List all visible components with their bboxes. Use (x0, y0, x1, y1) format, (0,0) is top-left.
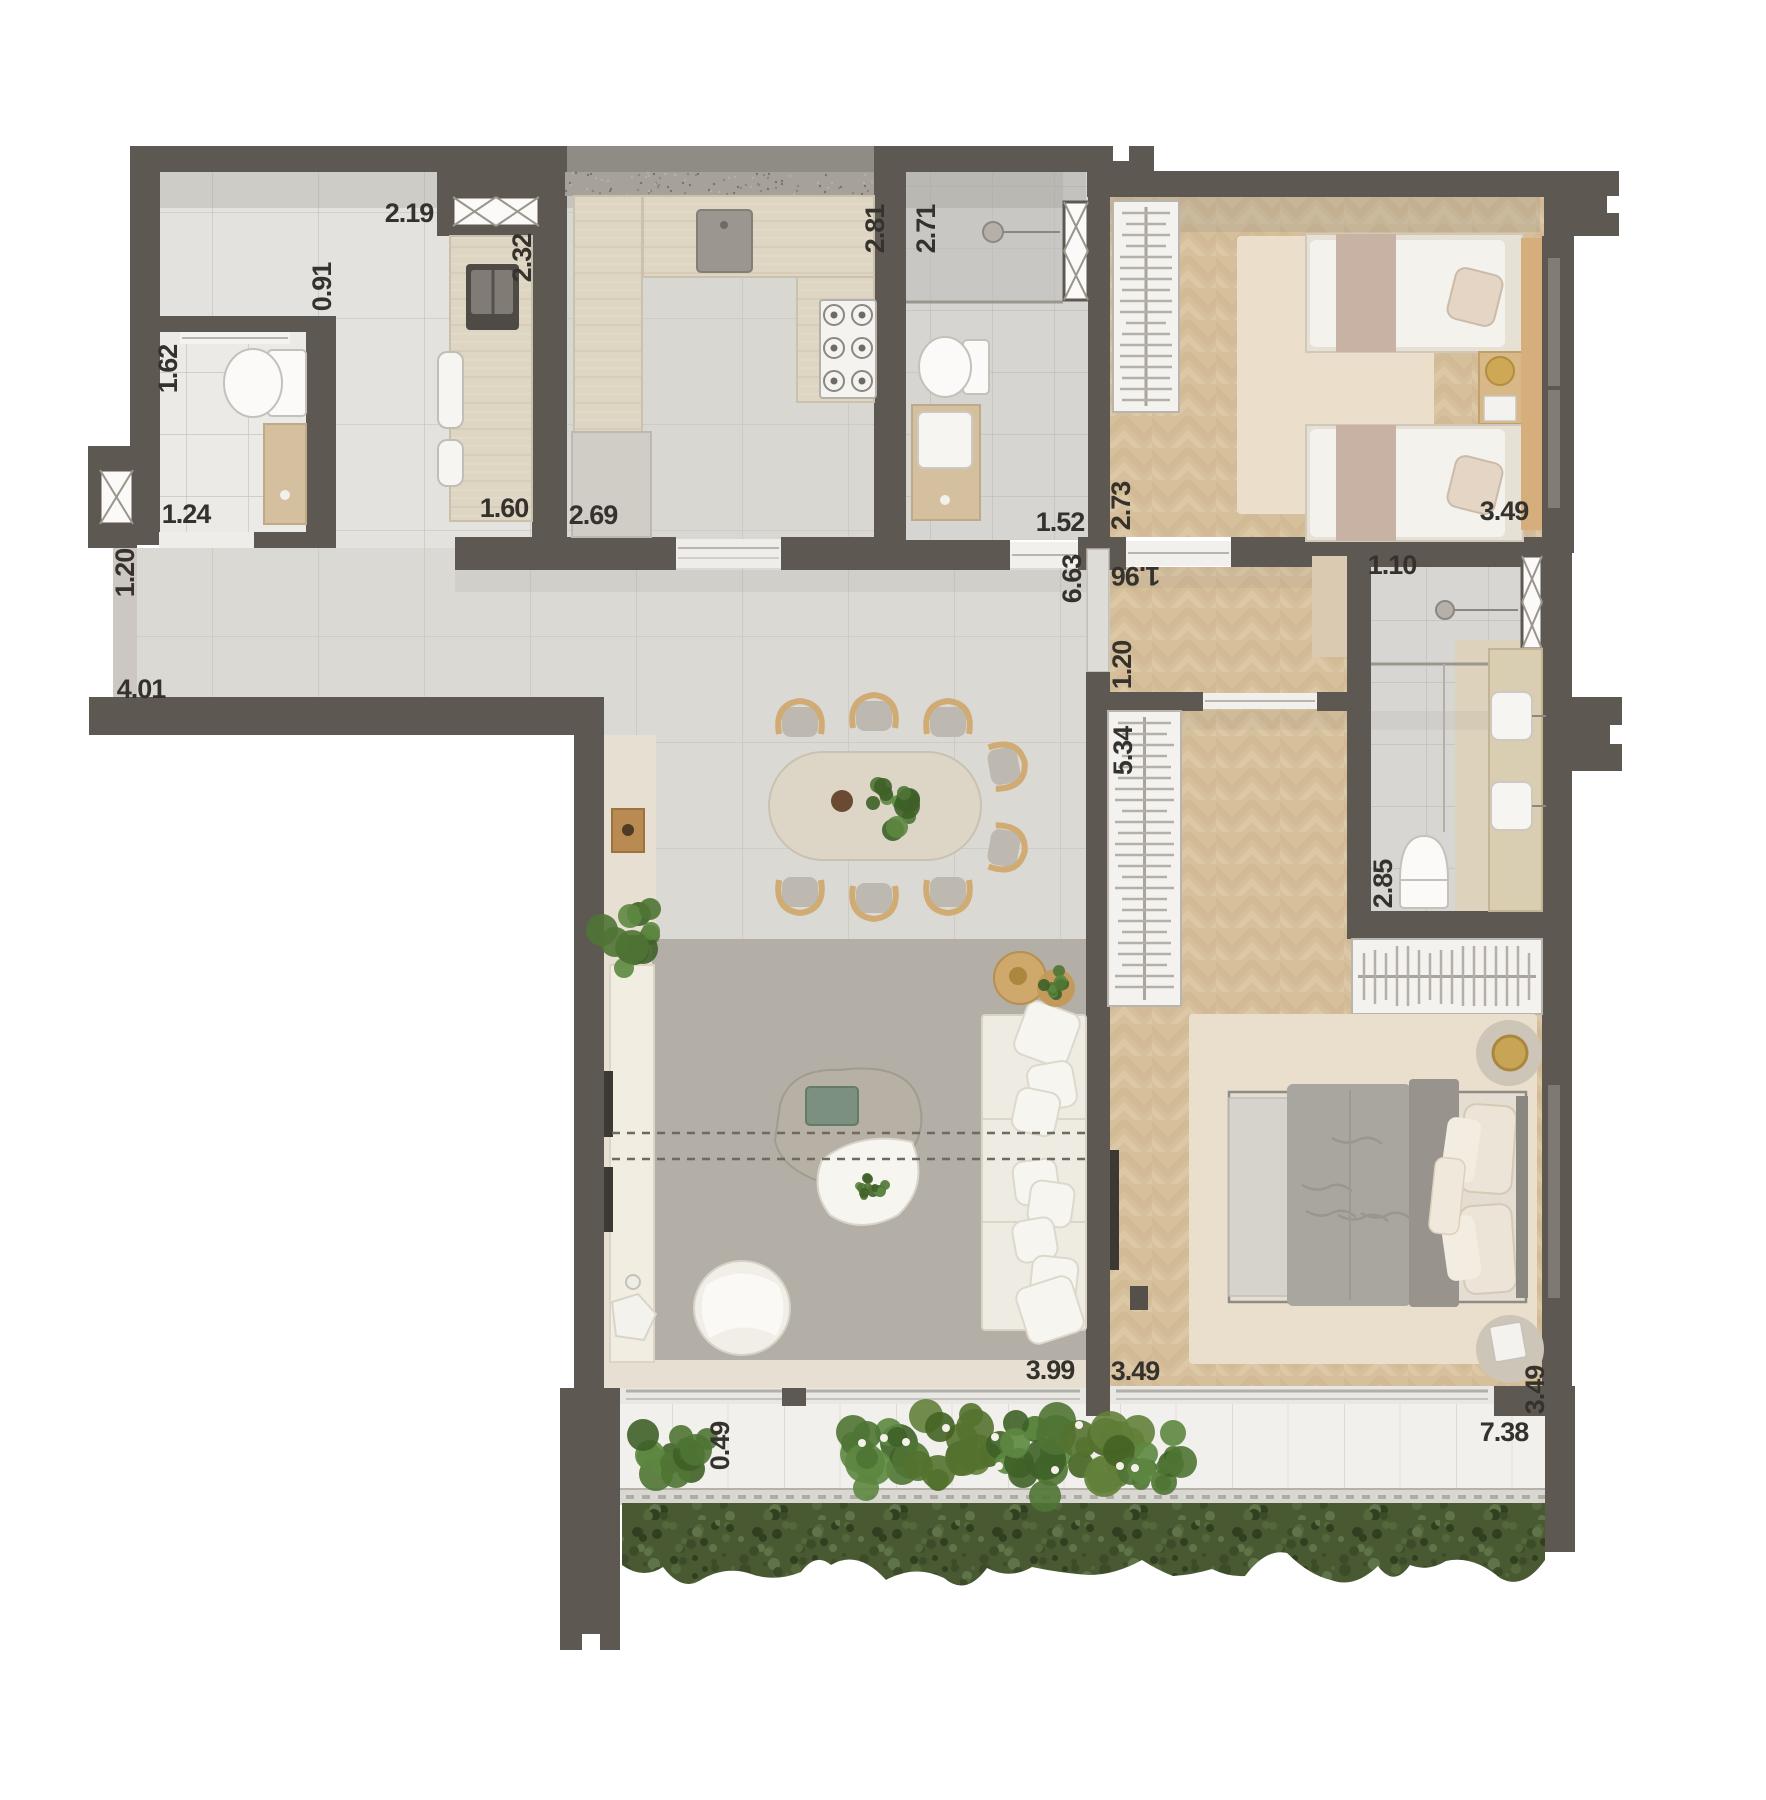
svg-text:4.01: 4.01 (117, 674, 167, 704)
svg-text:3.49: 3.49 (1520, 1365, 1550, 1415)
svg-text:5.34: 5.34 (1108, 726, 1138, 776)
svg-text:1.62: 1.62 (153, 345, 183, 394)
svg-text:0.91: 0.91 (307, 262, 337, 312)
svg-text:1.10: 1.10 (1368, 550, 1417, 580)
svg-text:1.52: 1.52 (1036, 507, 1085, 537)
svg-text:2.32: 2.32 (507, 234, 537, 283)
svg-text:2.73: 2.73 (1106, 481, 1136, 531)
svg-text:2.69: 2.69 (569, 500, 619, 530)
svg-text:3.99: 3.99 (1026, 1355, 1076, 1385)
svg-text:3.49: 3.49 (1480, 496, 1530, 526)
svg-text:1.60: 1.60 (480, 493, 529, 523)
svg-text:2.85: 2.85 (1368, 859, 1398, 909)
svg-text:2.71: 2.71 (911, 204, 941, 254)
svg-text:1.96: 1.96 (1111, 561, 1161, 591)
svg-text:7.38: 7.38 (1480, 1417, 1530, 1447)
svg-text:0.49: 0.49 (705, 1421, 735, 1471)
svg-text:3.49: 3.49 (1111, 1356, 1161, 1386)
svg-text:1.20: 1.20 (110, 549, 140, 598)
svg-text:6.63: 6.63 (1057, 554, 1087, 604)
svg-text:1.20: 1.20 (1107, 641, 1137, 690)
svg-text:2.19: 2.19 (385, 198, 435, 228)
svg-text:1.24: 1.24 (162, 499, 212, 529)
svg-text:2.81: 2.81 (860, 204, 890, 254)
